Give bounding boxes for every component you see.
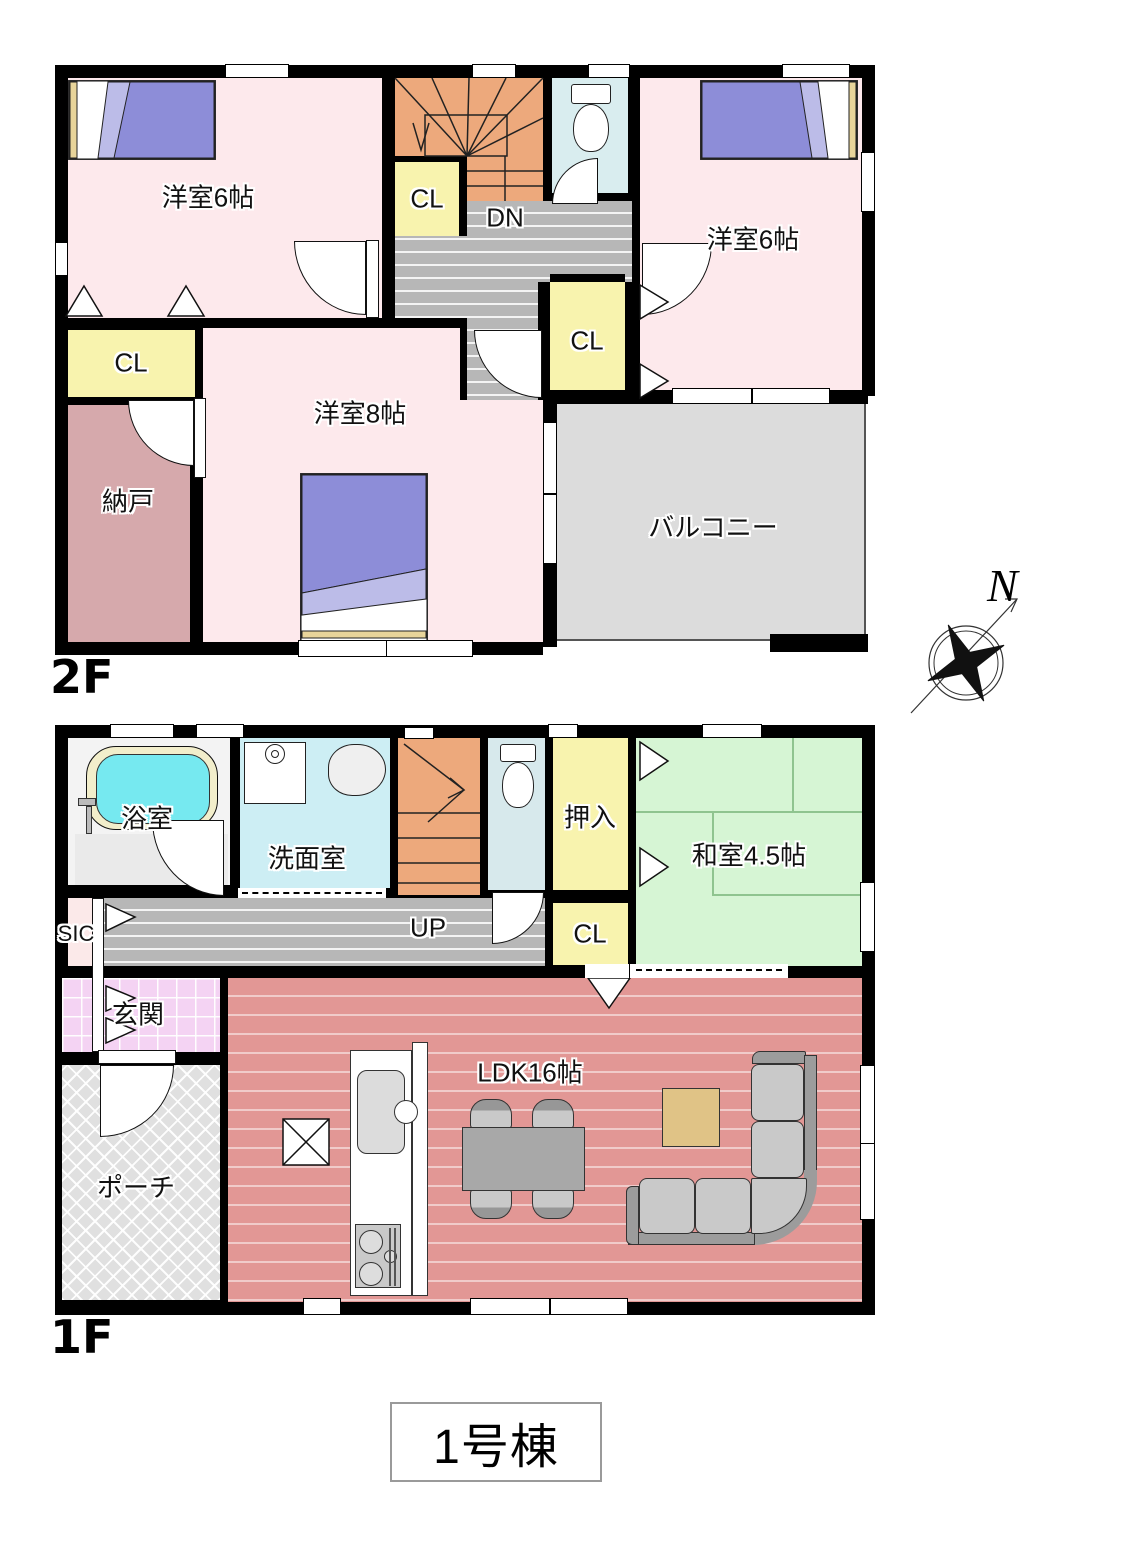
bed-icon — [700, 80, 858, 160]
stove-grill-icon — [389, 1228, 398, 1286]
bed-icon — [68, 80, 216, 160]
window — [298, 640, 473, 657]
window — [672, 388, 830, 404]
kitchen-counter — [412, 1042, 428, 1296]
window — [543, 422, 557, 564]
room-label-balcony: バルコニー — [648, 508, 777, 545]
window — [404, 727, 434, 739]
room-label-bedroom-ne: 洋室6帖 — [707, 220, 799, 257]
building-title: 1号棟 — [433, 1407, 559, 1477]
sofa-icon — [626, 1186, 639, 1245]
folding-door-icon — [166, 284, 206, 318]
folding-door-icon — [638, 362, 670, 400]
window — [861, 152, 875, 212]
window — [588, 64, 630, 78]
tatami-line — [712, 894, 862, 896]
sofa-cushion — [751, 1064, 804, 1121]
toilet-icon — [571, 84, 611, 104]
bed-icon — [300, 473, 428, 643]
window — [702, 724, 762, 738]
building-title-box: 1号棟 — [390, 1402, 602, 1482]
door-leaf — [194, 398, 206, 478]
stairs-label-dn: DN — [486, 203, 524, 234]
door-leaf — [366, 240, 379, 318]
chair-icon — [470, 1189, 512, 1219]
room-label-genkan: 玄関 — [112, 995, 164, 1032]
room-label-porch: ポーチ — [97, 1168, 175, 1205]
floor-label-2f: 2F — [50, 650, 113, 704]
washer-icon — [271, 750, 279, 758]
room-label-bath: 浴室 — [121, 799, 173, 836]
room-label-sic: SIC — [58, 921, 95, 947]
tatami-line — [636, 811, 862, 813]
door-swing-icon — [586, 976, 632, 1010]
floorplan-canvas: 洋室6帖 洋室6帖 洋室8帖 CL CL CL DN 納戸 バルコニー 2F N — [0, 0, 1124, 1541]
window — [303, 1298, 341, 1315]
sliding-opening — [238, 888, 386, 898]
sofa-cushion — [695, 1178, 751, 1234]
window — [548, 724, 578, 738]
sofa-icon — [752, 1051, 806, 1064]
hallway-1f — [104, 898, 545, 966]
window — [860, 1065, 875, 1220]
room-label-closet-mid: CL — [410, 184, 443, 215]
window — [110, 724, 174, 738]
window — [472, 64, 516, 78]
chair-icon — [470, 1099, 512, 1129]
sofa-cushion — [639, 1178, 695, 1234]
room-label-bedroom-s: 洋室8帖 — [314, 394, 406, 431]
stairs-label-up: UP — [410, 913, 446, 944]
door-opening — [585, 964, 629, 978]
window — [55, 242, 68, 276]
refrigerator-icon — [282, 1118, 330, 1166]
room-label-storage: 納戸 — [102, 482, 154, 519]
compass-icon: N — [903, 563, 1033, 713]
room-label-washitsu: 和室4.5帖 — [692, 836, 806, 873]
room-label-washroom: 洗面室 — [268, 839, 346, 876]
toilet-icon — [573, 104, 609, 152]
room-label-ldk: LDK16帖 — [477, 1053, 583, 1090]
folding-door-icon — [638, 283, 670, 321]
sofa-cushion — [751, 1121, 804, 1178]
wall — [770, 634, 868, 652]
floorplan-1f: 浴室 洗面室 UP 押入 和室4.5帖 CL SIC 玄関 ポーチ LDK16帖 — [55, 725, 875, 1315]
room-label-closet-east: CL — [570, 326, 603, 357]
window — [782, 64, 850, 78]
chair-icon — [532, 1099, 574, 1129]
stove-burner-icon — [359, 1230, 383, 1254]
window — [470, 1298, 628, 1315]
stove-burner-icon — [359, 1262, 383, 1286]
chair-icon — [532, 1189, 574, 1219]
folding-door-icon — [638, 846, 670, 888]
room-label-bedroom-nw: 洋室6帖 — [162, 178, 254, 215]
wall — [550, 274, 625, 282]
window — [860, 882, 875, 952]
folding-door-icon — [64, 284, 104, 318]
room-label-closet-1f: CL — [573, 919, 606, 950]
floorplan-2f: 洋室6帖 洋室6帖 洋室8帖 CL CL CL DN 納戸 バルコニー — [55, 65, 875, 655]
room-label-closet-west: CL — [114, 348, 147, 379]
sliding-opening — [630, 964, 788, 978]
coffee-table-icon — [662, 1088, 720, 1147]
compass-north-label: N — [986, 560, 1020, 611]
window — [196, 724, 244, 738]
faucet-icon — [394, 1100, 418, 1124]
folding-door-icon — [638, 740, 670, 782]
window — [225, 64, 289, 78]
stairs-up-icon — [398, 738, 480, 895]
door-leaf — [98, 1050, 176, 1064]
folding-door-icon — [104, 902, 138, 934]
room-label-oshiire: 押入 — [564, 798, 616, 835]
toilet-icon — [500, 744, 536, 762]
toilet-icon — [502, 762, 534, 808]
wall — [460, 318, 467, 400]
shower-icon — [78, 798, 96, 806]
floor-label-1f: 1F — [50, 1310, 113, 1364]
dining-table-icon — [462, 1127, 585, 1191]
shower-icon — [86, 806, 92, 834]
sofa-icon — [804, 1055, 817, 1179]
tatami-line — [792, 738, 794, 811]
